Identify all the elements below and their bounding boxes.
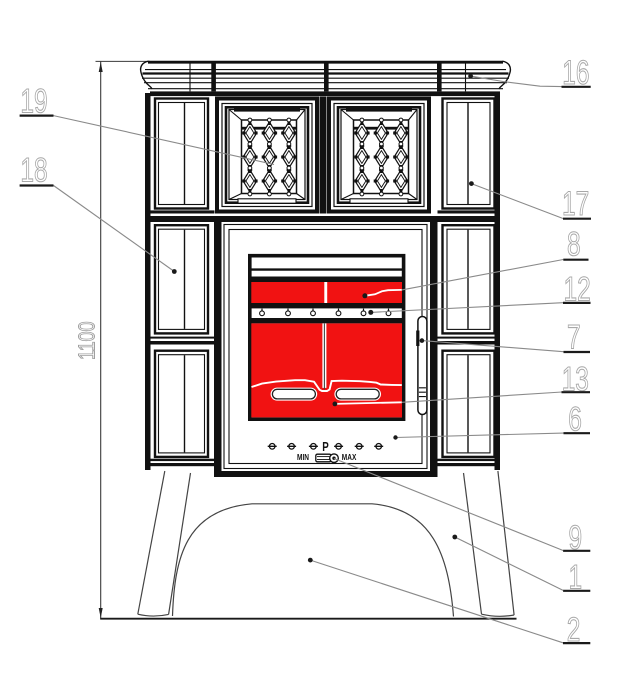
svg-text:18: 18: [20, 151, 47, 189]
svg-text:1100: 1100: [74, 321, 100, 360]
svg-text:8: 8: [567, 225, 581, 263]
svg-text:MAX: MAX: [342, 453, 357, 462]
svg-text:17: 17: [562, 185, 589, 223]
svg-text:P: P: [322, 440, 329, 454]
svg-text:MIN: MIN: [297, 453, 309, 462]
svg-text:7: 7: [567, 319, 581, 357]
